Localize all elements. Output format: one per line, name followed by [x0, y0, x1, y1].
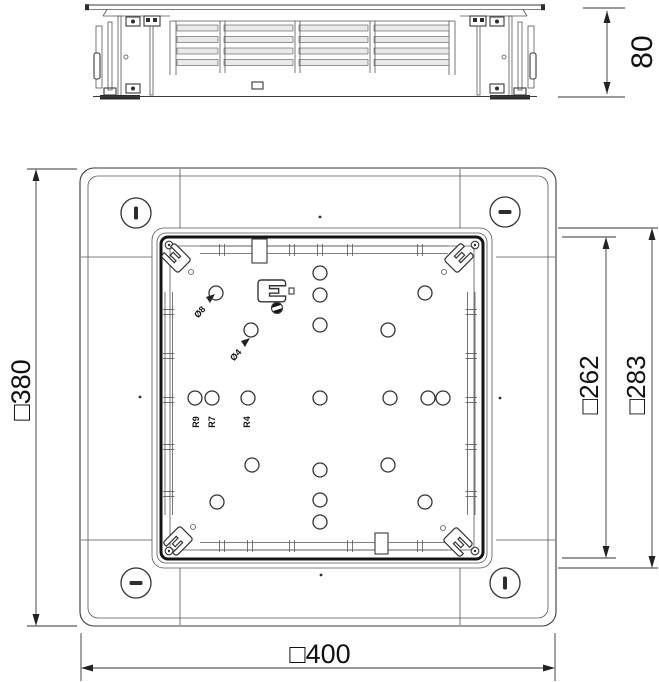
dimension-plan-height: □380 — [6, 169, 77, 626]
flange-center-marks — [139, 216, 502, 577]
corner-clamp-top-right — [444, 243, 474, 273]
screw-slot-horizontal — [130, 581, 143, 585]
lid-holes — [188, 266, 450, 529]
dim-label-400: □400 — [289, 639, 350, 669]
dimension-side-height: 80 — [558, 8, 659, 97]
screw-slot-horizontal — [499, 210, 512, 214]
dia-label-1: Ø8 — [192, 304, 207, 320]
center-mark — [319, 216, 322, 219]
hole — [245, 458, 259, 472]
hole — [241, 391, 255, 405]
center-bracket-pin — [289, 288, 294, 294]
slat — [177, 37, 218, 43]
hole — [383, 391, 397, 405]
side-elevation-view — [85, 4, 545, 99]
center-bracket — [258, 280, 286, 302]
lid-bottom-tab — [375, 533, 388, 554]
side-top-plate-endcap-left — [85, 4, 89, 10]
corner-clamp-bottom-right — [443, 527, 473, 557]
dimension-lid-inner: □262 — [562, 237, 616, 558]
hole — [418, 286, 432, 300]
slat — [177, 25, 218, 31]
slat — [177, 48, 218, 54]
lid-outer-frame-inner-line — [157, 233, 487, 563]
hole — [313, 493, 327, 507]
slat — [224, 25, 293, 31]
hole — [313, 463, 327, 477]
slat — [299, 25, 368, 31]
drawing-svg: 80 — [0, 0, 659, 682]
hole — [205, 391, 219, 405]
hole — [381, 323, 395, 337]
slat — [299, 60, 368, 66]
center-mark — [139, 396, 142, 399]
hole — [210, 495, 224, 509]
dim-label-283: □283 — [621, 355, 651, 414]
dimension-lid-outer: □283 — [558, 228, 658, 568]
slat — [299, 48, 368, 54]
lid-top-tab — [252, 239, 267, 263]
dimension-plan-width: □400 — [81, 633, 555, 681]
clamp-pin-bottom-left — [191, 525, 196, 530]
side-bracket-right — [470, 16, 536, 100]
radius-label-3: R4 — [242, 416, 252, 428]
lid-edge-inner-line — [170, 246, 474, 550]
dia-label-2: Ø4 — [228, 347, 243, 363]
corner-clamp-bottom-left — [163, 526, 193, 556]
hole — [421, 391, 435, 405]
center-mark — [499, 397, 502, 400]
lid-screw-center — [168, 244, 170, 246]
slat — [374, 25, 449, 31]
slat — [374, 37, 449, 43]
hole — [313, 266, 327, 280]
slat — [224, 60, 293, 66]
side-top-plate-endcap-right — [541, 4, 545, 10]
hole — [244, 323, 258, 337]
hole — [436, 391, 450, 405]
hole — [188, 391, 202, 405]
clamp-pin-top-left — [189, 270, 194, 275]
clamp-pin-bottom-right — [441, 526, 446, 531]
hole — [381, 458, 395, 472]
radius-label-2: R7 — [207, 416, 217, 428]
hole — [313, 391, 327, 405]
side-slats — [177, 25, 449, 66]
hole — [418, 495, 432, 509]
diameter-callouts: Ø8 Ø4 — [192, 294, 250, 363]
technical-drawing-canvas: 80 — [0, 0, 659, 682]
lid-screw-center — [168, 550, 170, 552]
hole — [313, 288, 327, 302]
side-bracket-left — [94, 16, 160, 100]
hole — [313, 318, 327, 332]
plan-view: Ø8 Ø4 R9 R7 R4 — [80, 168, 556, 626]
dim-label-262: □262 — [574, 355, 604, 414]
lid-screw-center — [474, 550, 476, 552]
side-center-knockout — [252, 82, 263, 89]
slat — [374, 48, 449, 54]
slat — [299, 37, 368, 43]
screw-slot-vertical — [134, 207, 138, 220]
slat — [224, 37, 293, 43]
radius-label-1: R9 — [191, 416, 201, 428]
hole — [313, 515, 327, 529]
screw-slot-vertical — [503, 577, 507, 590]
slat — [224, 48, 293, 54]
slat — [177, 60, 218, 66]
side-flange-lip — [103, 10, 527, 17]
radius-callouts: R9 R7 R4 — [191, 416, 252, 428]
lid-outer-frame — [152, 228, 492, 568]
clamp-pin-top-right — [442, 270, 447, 275]
dim-label-380: □380 — [6, 359, 36, 420]
center-mark — [320, 574, 323, 577]
slat — [374, 60, 449, 66]
dim-label-80: 80 — [626, 35, 659, 68]
datum-target — [270, 303, 283, 314]
lid-screw-center — [474, 244, 476, 246]
